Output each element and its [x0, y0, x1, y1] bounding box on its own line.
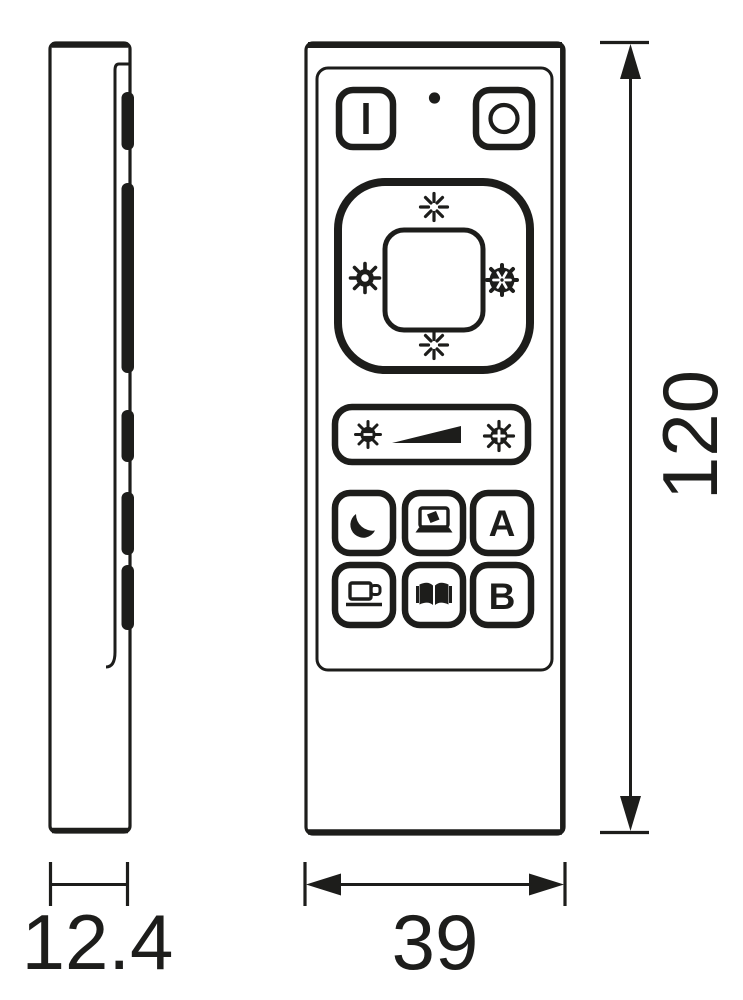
dimension-lines: [0, 0, 743, 1000]
height-dimension: [600, 43, 649, 833]
dimensional-drawing: A B: [0, 0, 743, 1000]
width-dimension-label: 39: [335, 900, 535, 985]
depth-dimension-label: 12.4: [0, 900, 195, 985]
height-dimension-label: 120: [650, 335, 730, 535]
